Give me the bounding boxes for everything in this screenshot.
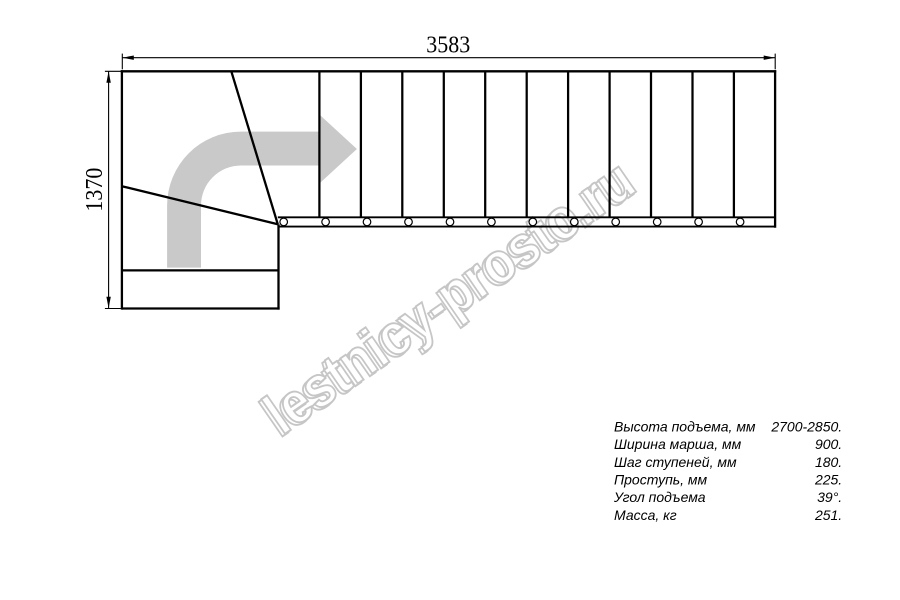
- svg-text:Шаг ступеней, мм: Шаг ступеней, мм: [614, 454, 737, 470]
- svg-text:Масса, кг: Масса, кг: [614, 507, 677, 523]
- svg-text:Ширина марша, мм: Ширина марша, мм: [614, 436, 742, 452]
- svg-text:900.: 900.: [815, 436, 842, 452]
- svg-text:39°.: 39°.: [817, 489, 842, 505]
- svg-text:Угол подъема: Угол подъема: [613, 489, 706, 505]
- svg-text:Высота подъема, мм: Высота подъема, мм: [614, 419, 756, 435]
- svg-text:225.: 225.: [814, 472, 842, 488]
- svg-text:251.: 251.: [814, 507, 842, 523]
- svg-text:2700-2850.: 2700-2850.: [770, 419, 842, 435]
- svg-text:180.: 180.: [815, 454, 842, 470]
- svg-text:Проступь, мм: Проступь, мм: [614, 472, 708, 488]
- svg-text:1370: 1370: [81, 168, 108, 212]
- svg-text:3583: 3583: [426, 32, 470, 59]
